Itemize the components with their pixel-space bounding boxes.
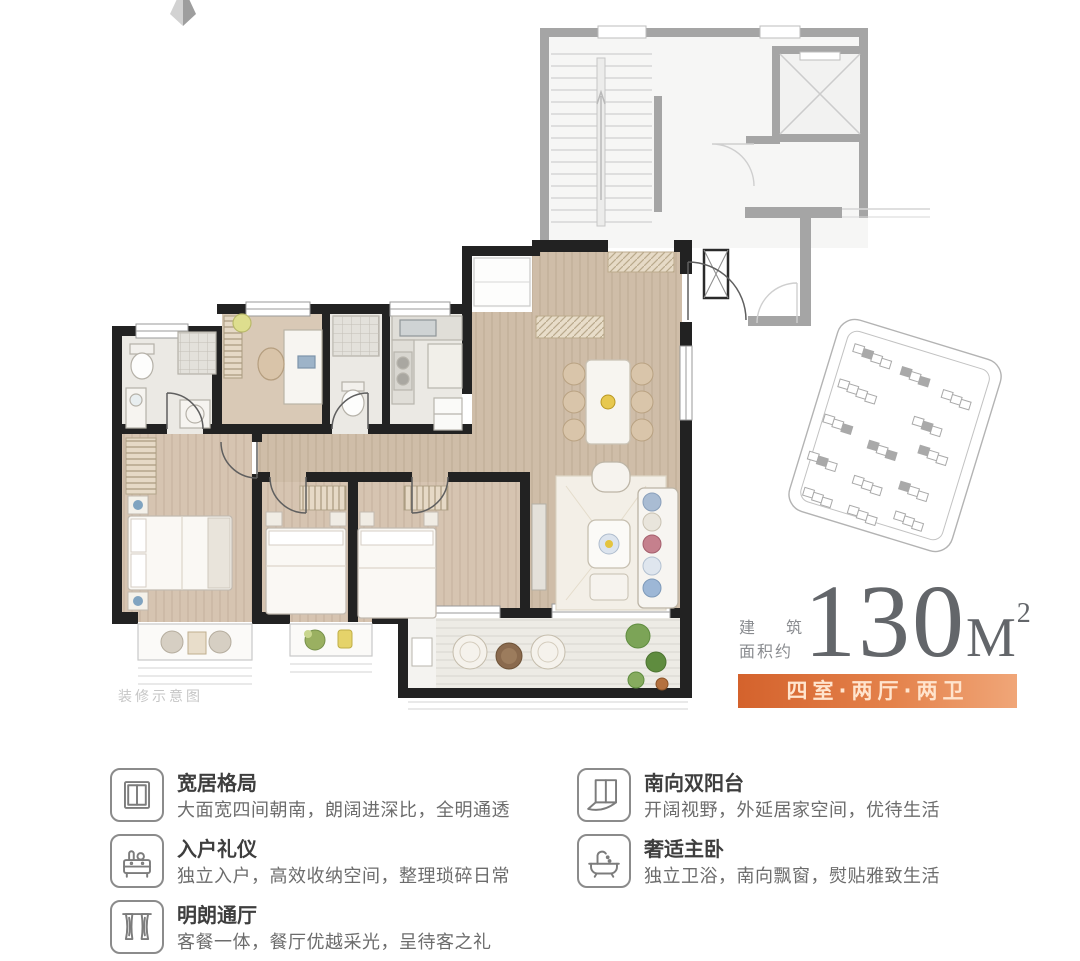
site-plan [785, 315, 1006, 556]
entry-shoe-cabinet [536, 316, 604, 338]
feature-title: 宽居格局 [177, 773, 510, 793]
feature-desc: 客餐一体，餐厅优越采光，呈待客之礼 [177, 934, 492, 952]
feature-wide-layout: 宽居格局 大面宽四间朝南，朗阔进深比，全明通透 [110, 768, 510, 822]
feature-title: 奢适主卧 [644, 839, 940, 859]
north-arrow-icon [170, 0, 196, 26]
feature-desc: 开阔视野，外延居家空间，优待生活 [644, 802, 940, 820]
feature-title: 明朗通厅 [177, 905, 492, 925]
page: 装修示意图 建筑 面积约 130M2 四室·两厅·两卫 宽居格局 大面宽四间朝南… [0, 0, 1080, 961]
plan-watermark: 装修示意图 [118, 686, 203, 706]
feature-entry-ritual: 入户礼仪 独立入户，高效收纳空间，整理琐碎日常 [110, 834, 510, 888]
area-unit: M [966, 607, 1017, 669]
feature-bright-hall: 明朗通厅 客餐一体，餐厅优越采光，呈待客之礼 [110, 900, 492, 954]
area-value: 130 [804, 564, 966, 679]
feature-title: 南向双阳台 [644, 773, 940, 793]
feature-title: 入户礼仪 [177, 839, 510, 859]
bathtub-icon [577, 834, 631, 888]
area-label-line2: 面积约 [739, 641, 805, 663]
feature-master-suite: 奢适主卧 独立卫浴，南向飘窗，熨贴雅致生活 [577, 834, 940, 888]
layout-banner: 四室·两厅·两卫 [738, 674, 1017, 708]
console-icon [110, 834, 164, 888]
balcony-icon [577, 768, 631, 822]
bedroom2-bay-window [290, 624, 372, 672]
feature-double-balcony: 南向双阳台 开阔视野，外延居家空间，优待生活 [577, 768, 940, 822]
curtain-icon [110, 900, 164, 954]
dining-table [563, 360, 653, 444]
entry-mat [608, 252, 674, 272]
area-superscript: 2 [1017, 598, 1031, 629]
window-icon [110, 768, 164, 822]
area-figure: 130M2 [804, 570, 1031, 674]
area-label: 建筑 面积约 [739, 617, 805, 663]
feature-desc: 大面宽四间朝南，朗阔进深比，全明通透 [177, 802, 510, 820]
master-bay-window [138, 624, 252, 684]
elevator-shaft [776, 50, 864, 138]
feature-desc: 独立卫浴，南向飘窗，熨贴雅致生活 [644, 868, 940, 886]
feature-desc: 独立入户，高效收纳空间，整理琐碎日常 [177, 868, 510, 886]
area-label-line1: 建筑 [739, 617, 805, 639]
